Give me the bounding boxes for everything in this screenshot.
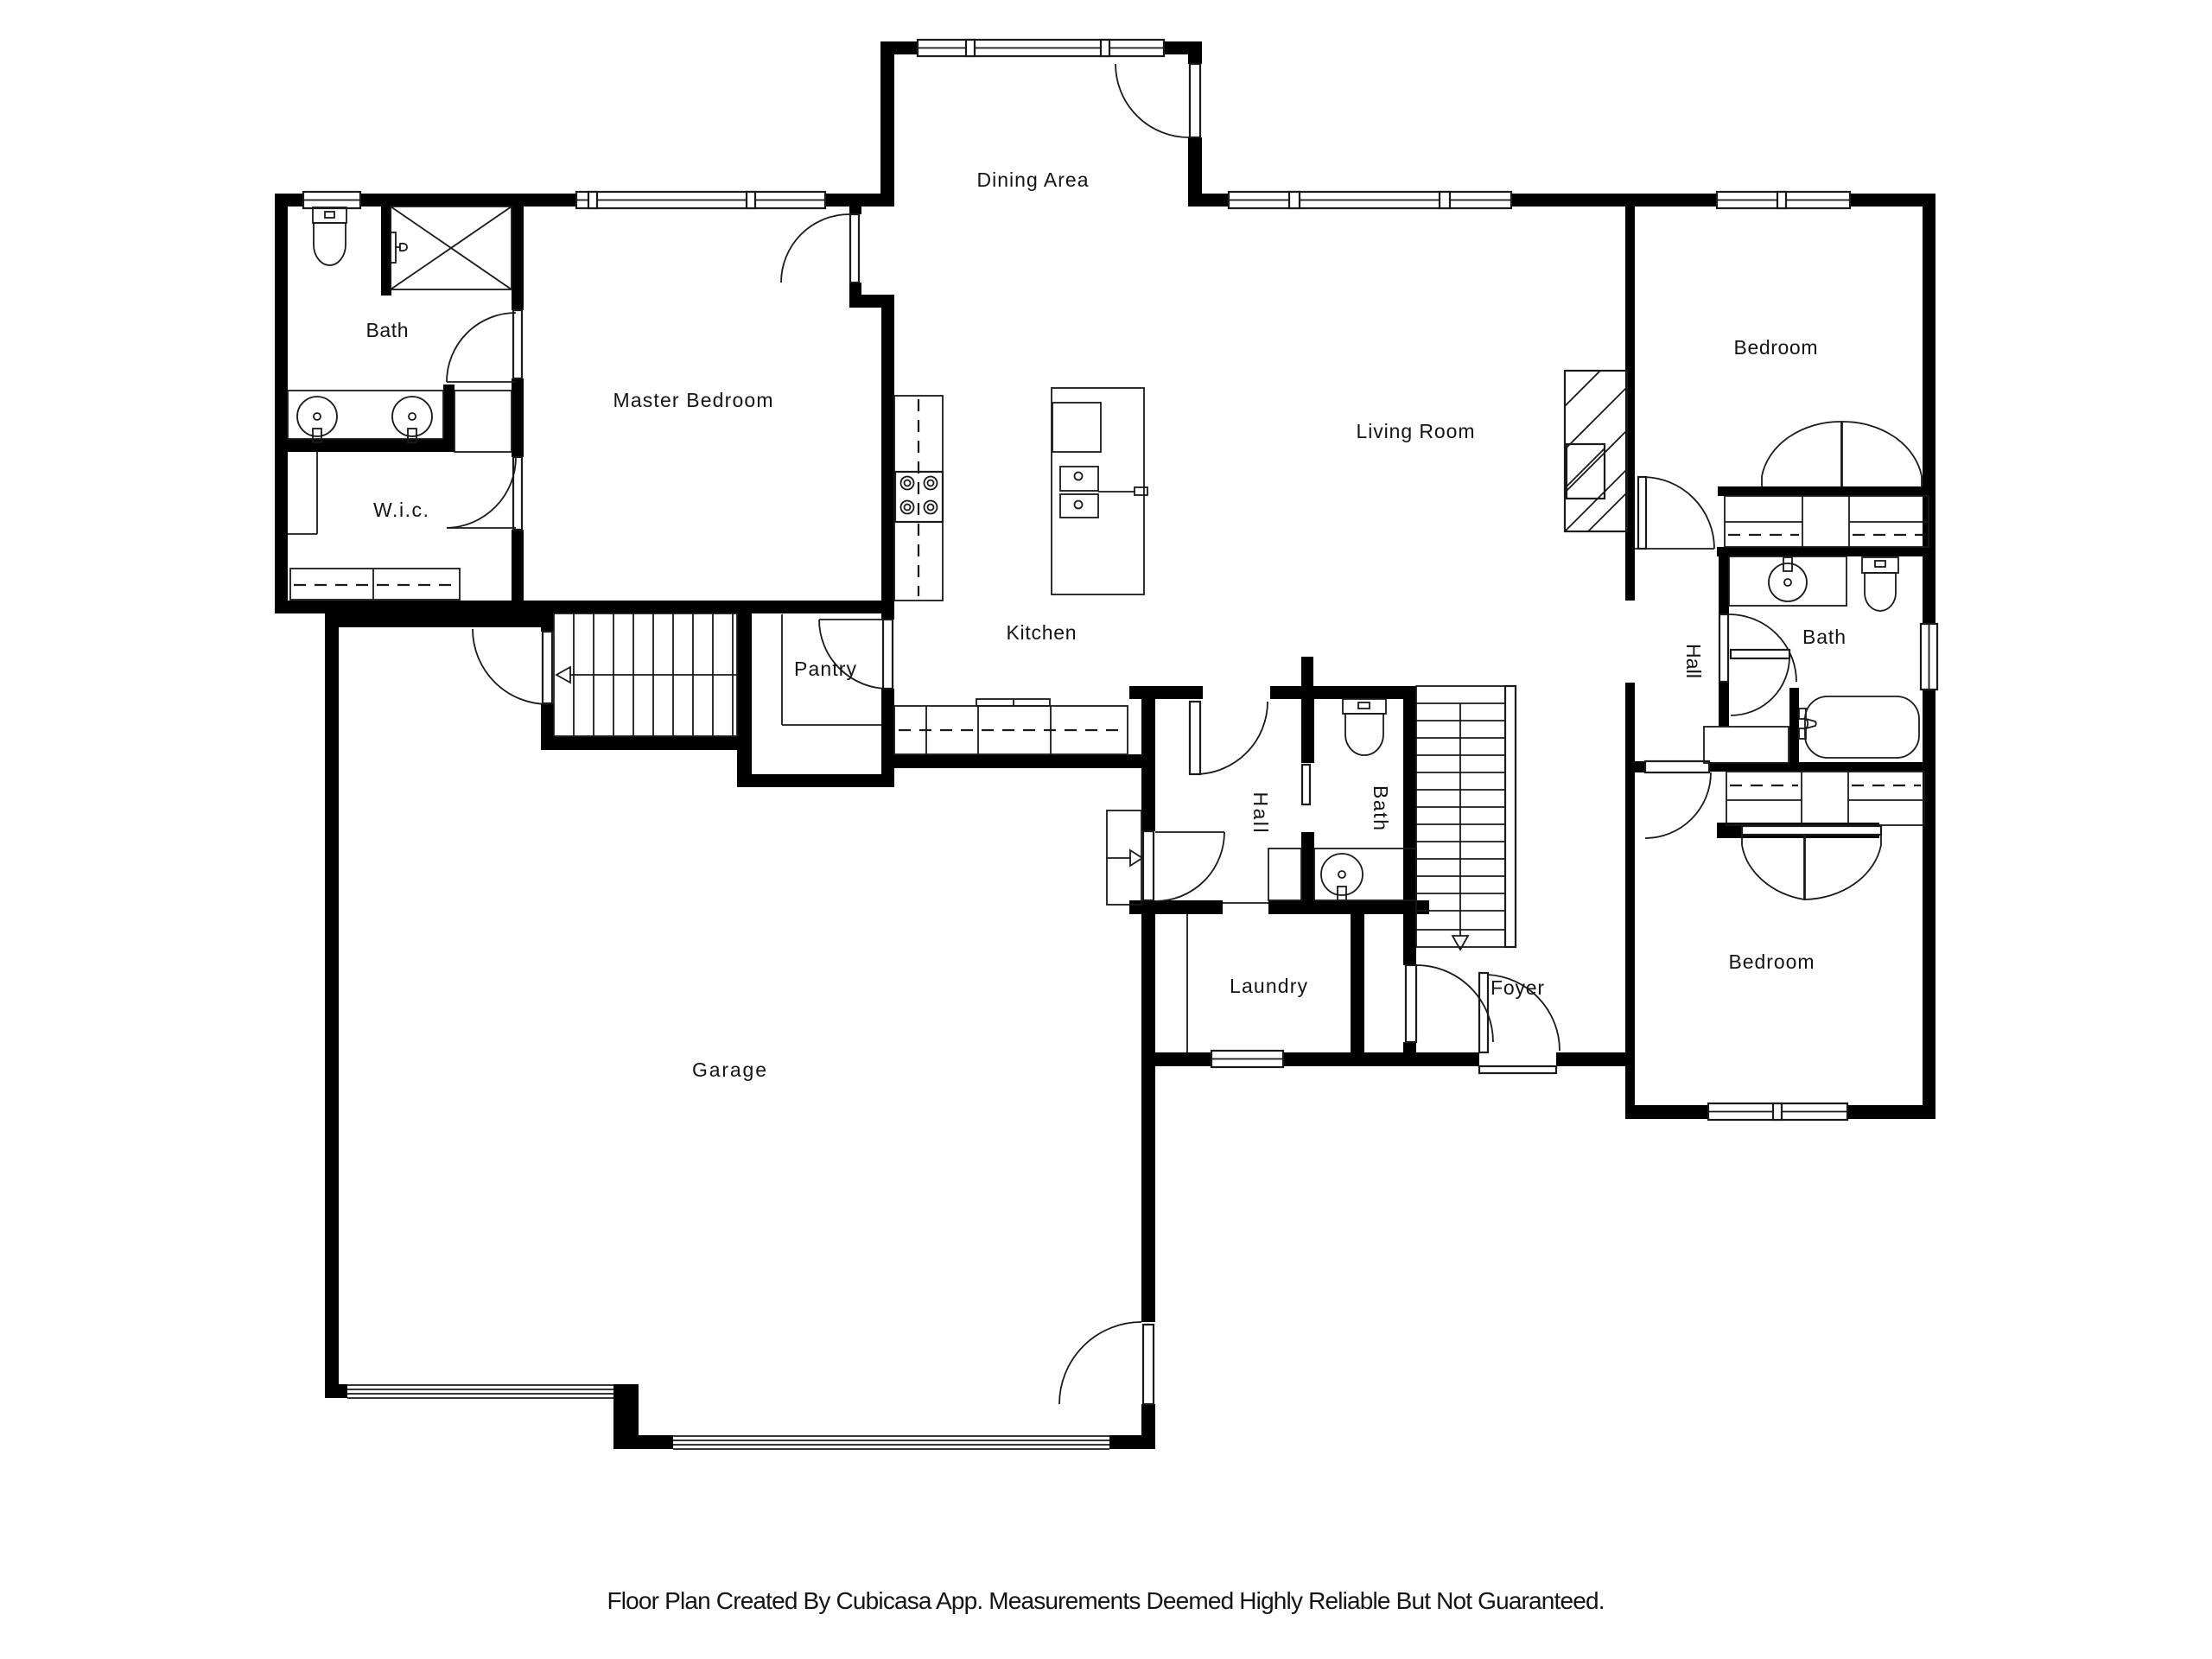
svg-text:Garage: Garage (692, 1058, 766, 1081)
svg-text:Foyer: Foyer (1491, 976, 1544, 999)
svg-text:Bedroom: Bedroom (1729, 950, 1815, 973)
svg-text:Bedroom: Bedroom (1734, 336, 1818, 359)
svg-text:W.i.c.: W.i.c. (373, 499, 429, 521)
svg-text:Hall: Hall (1682, 644, 1705, 678)
svg-text:Dining Area: Dining Area (977, 168, 1089, 191)
svg-text:Laundry: Laundry (1230, 975, 1308, 997)
svg-text:Kitchen: Kitchen (1007, 621, 1077, 644)
svg-text:Living Room: Living Room (1357, 420, 1475, 442)
svg-text:Master Bedroom: Master Bedroom (613, 389, 773, 411)
svg-text:Pantry: Pantry (794, 658, 857, 680)
svg-text:Bath: Bath (1370, 785, 1392, 830)
svg-text:Bath: Bath (366, 319, 409, 341)
svg-text:Floor Plan Created By Cubicasa: Floor Plan Created By Cubicasa App. Meas… (607, 1587, 1605, 1614)
svg-text:Bath: Bath (1802, 626, 1846, 648)
